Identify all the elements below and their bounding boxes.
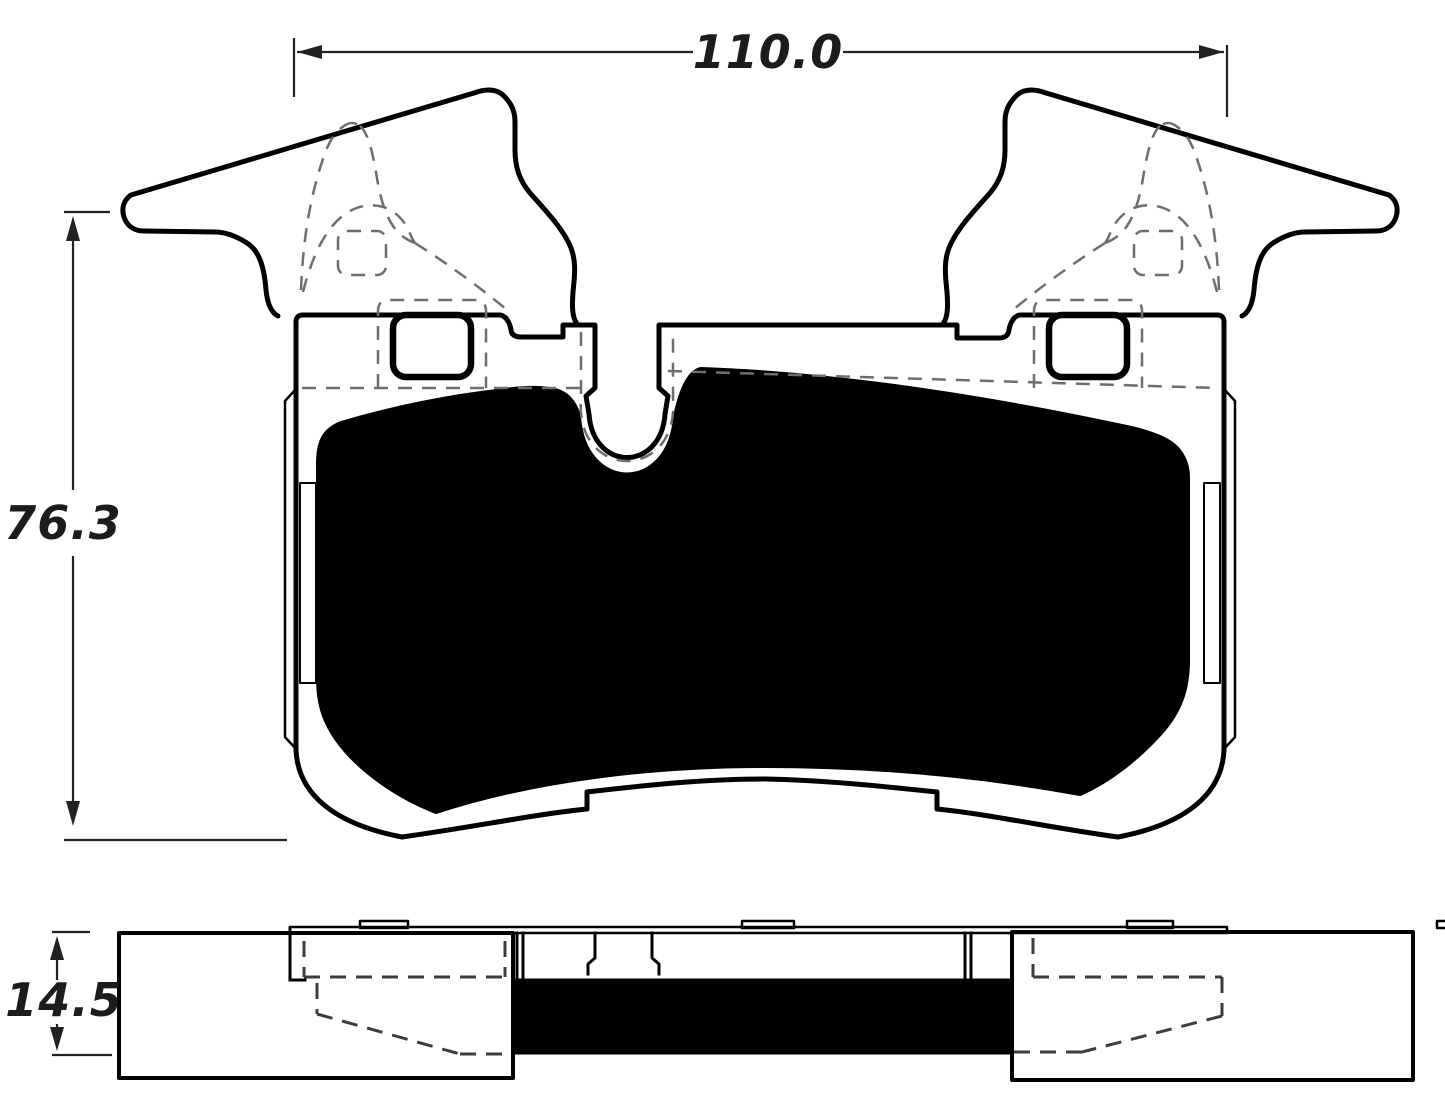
locator-tab-2 <box>742 921 794 928</box>
height-dimension-label: 76.3 <box>4 496 122 550</box>
height-arrow-down-icon <box>66 801 80 826</box>
height-arrow-up-icon <box>66 216 80 241</box>
hidden-funnel-right <box>1014 123 1219 309</box>
front-view <box>123 90 1397 837</box>
brake-pad-technical-drawing: 110.0 76.3 14.5 <box>0 0 1445 1109</box>
width-dimension-label: 110.0 <box>693 25 844 79</box>
right-mounting-ear <box>943 90 1397 324</box>
abutment-hole-right <box>1049 315 1127 377</box>
locator-tab-1 <box>360 921 408 928</box>
friction-material <box>318 369 1188 812</box>
friction-strip <box>513 980 1012 1053</box>
drawing-page: 110.0 76.3 14.5 <box>0 0 1445 1109</box>
side-tab-right-detail <box>1204 483 1220 683</box>
width-arrow-right-icon <box>1199 45 1224 59</box>
hidden-square-left <box>338 231 386 275</box>
band-feature-lines <box>517 933 971 980</box>
thickness-arrow-down-icon <box>50 1027 64 1051</box>
left-mounting-ear <box>123 90 577 324</box>
side-tab-left-detail <box>300 483 316 683</box>
side-view <box>119 921 1445 1080</box>
hidden-funnel-left <box>301 123 506 309</box>
width-arrow-left-icon <box>297 45 322 59</box>
abutment-hole-left <box>393 315 471 377</box>
thickness-dimension-label: 14.5 <box>5 973 123 1027</box>
dimension-thickness: 14.5 <box>5 932 123 1055</box>
left-end-block <box>119 933 513 1078</box>
right-end-block <box>1012 932 1413 1080</box>
locator-tab-4 <box>1437 921 1445 928</box>
hidden-square-right <box>1134 231 1182 275</box>
dimension-height: 76.3 <box>4 212 287 840</box>
locator-tab-3 <box>1127 921 1173 928</box>
thickness-arrow-up-icon <box>50 936 64 960</box>
